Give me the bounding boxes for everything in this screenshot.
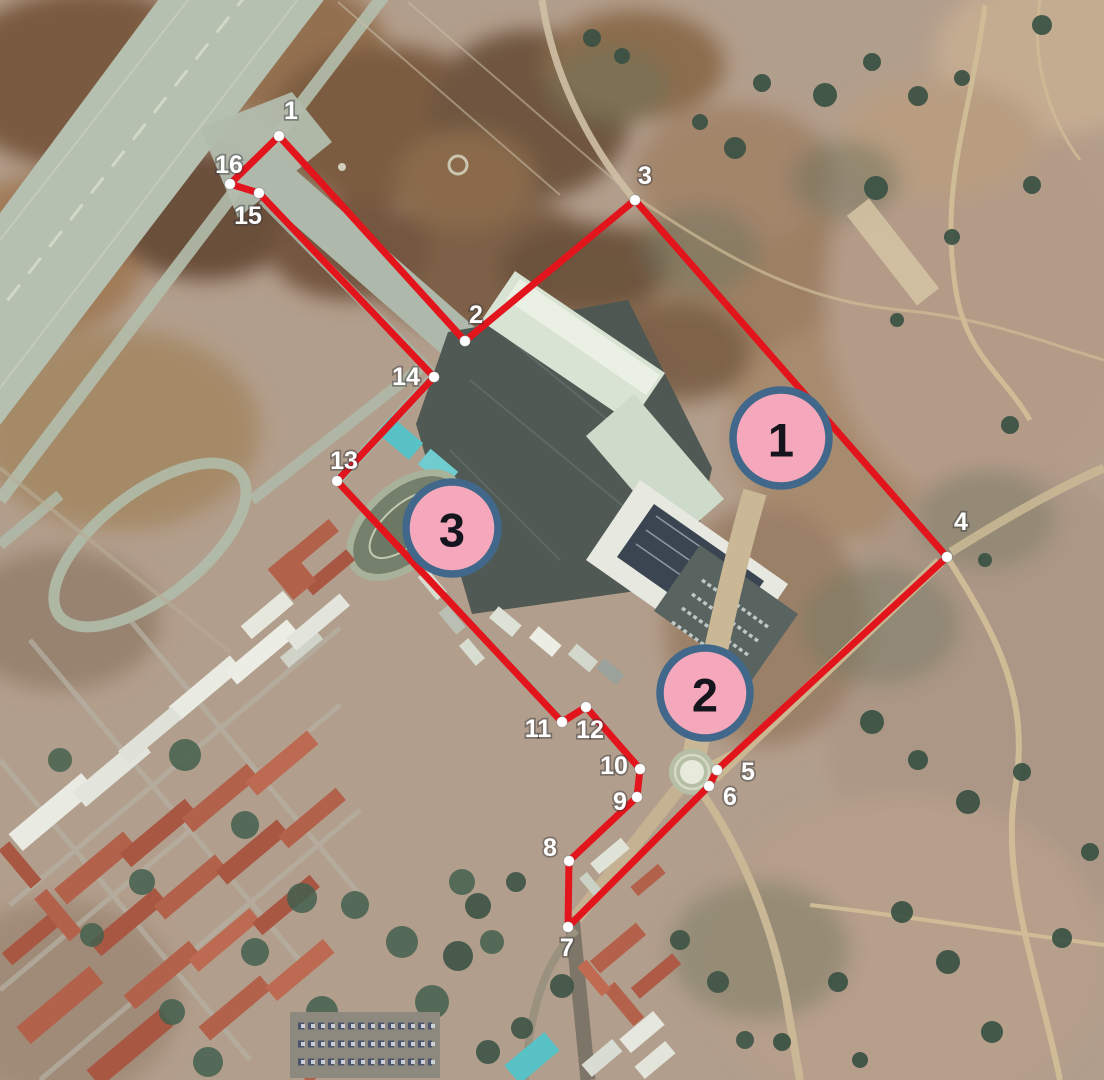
boundary-point-label-4: 4 xyxy=(954,508,968,536)
boundary-point-dot-13 xyxy=(332,476,343,487)
boundary-point-label-12: 12 xyxy=(576,716,604,744)
boundary-point-label-1: 1 xyxy=(284,97,298,125)
boundary-point-label-13: 13 xyxy=(330,447,358,475)
boundary-point-label-11: 11 xyxy=(525,715,552,743)
boundary-point-dot-2 xyxy=(460,336,471,347)
aerial-figure: 12345678910111213141516123 xyxy=(0,0,1104,1080)
boundary-point-dot-15 xyxy=(254,188,265,199)
boundary-point-dot-1 xyxy=(274,131,285,142)
boundary-point-dot-3 xyxy=(630,195,641,206)
boundary-point-dot-11 xyxy=(557,717,568,728)
boundary-point-label-3: 3 xyxy=(638,162,652,190)
boundary-point-label-15: 15 xyxy=(234,202,262,230)
boundary-point-dot-6 xyxy=(704,781,715,792)
boundary-point-label-5: 5 xyxy=(741,758,755,786)
boundary-point-dot-10 xyxy=(635,764,646,775)
boundary-point-label-9: 9 xyxy=(613,788,627,816)
perimeter-line xyxy=(230,136,947,927)
boundary-point-label-6: 6 xyxy=(723,783,737,811)
boundary-point-label-8: 8 xyxy=(543,834,557,862)
boundary-point-dot-5 xyxy=(712,765,723,776)
boundary-point-label-10: 10 xyxy=(600,752,628,780)
boundary-overlay: 12345678910111213141516123 xyxy=(0,0,1104,1080)
boundary-point-label-2: 2 xyxy=(469,301,483,329)
boundary-point-label-16: 16 xyxy=(215,151,243,179)
boundary-point-label-7: 7 xyxy=(560,934,574,962)
boundary-point-dot-16 xyxy=(225,179,236,190)
zone-marker-label-2: 2 xyxy=(692,669,718,722)
boundary-point-dot-9 xyxy=(632,792,643,803)
boundary-point-dot-14 xyxy=(429,372,440,383)
zone-marker-label-3: 3 xyxy=(439,504,465,557)
boundary-point-dot-4 xyxy=(942,552,953,563)
boundary-point-dot-12 xyxy=(581,702,592,713)
zone-marker-label-1: 1 xyxy=(768,414,794,467)
boundary-point-label-14: 14 xyxy=(392,363,420,391)
boundary-point-dot-7 xyxy=(563,922,574,933)
boundary-point-dot-8 xyxy=(564,856,575,867)
